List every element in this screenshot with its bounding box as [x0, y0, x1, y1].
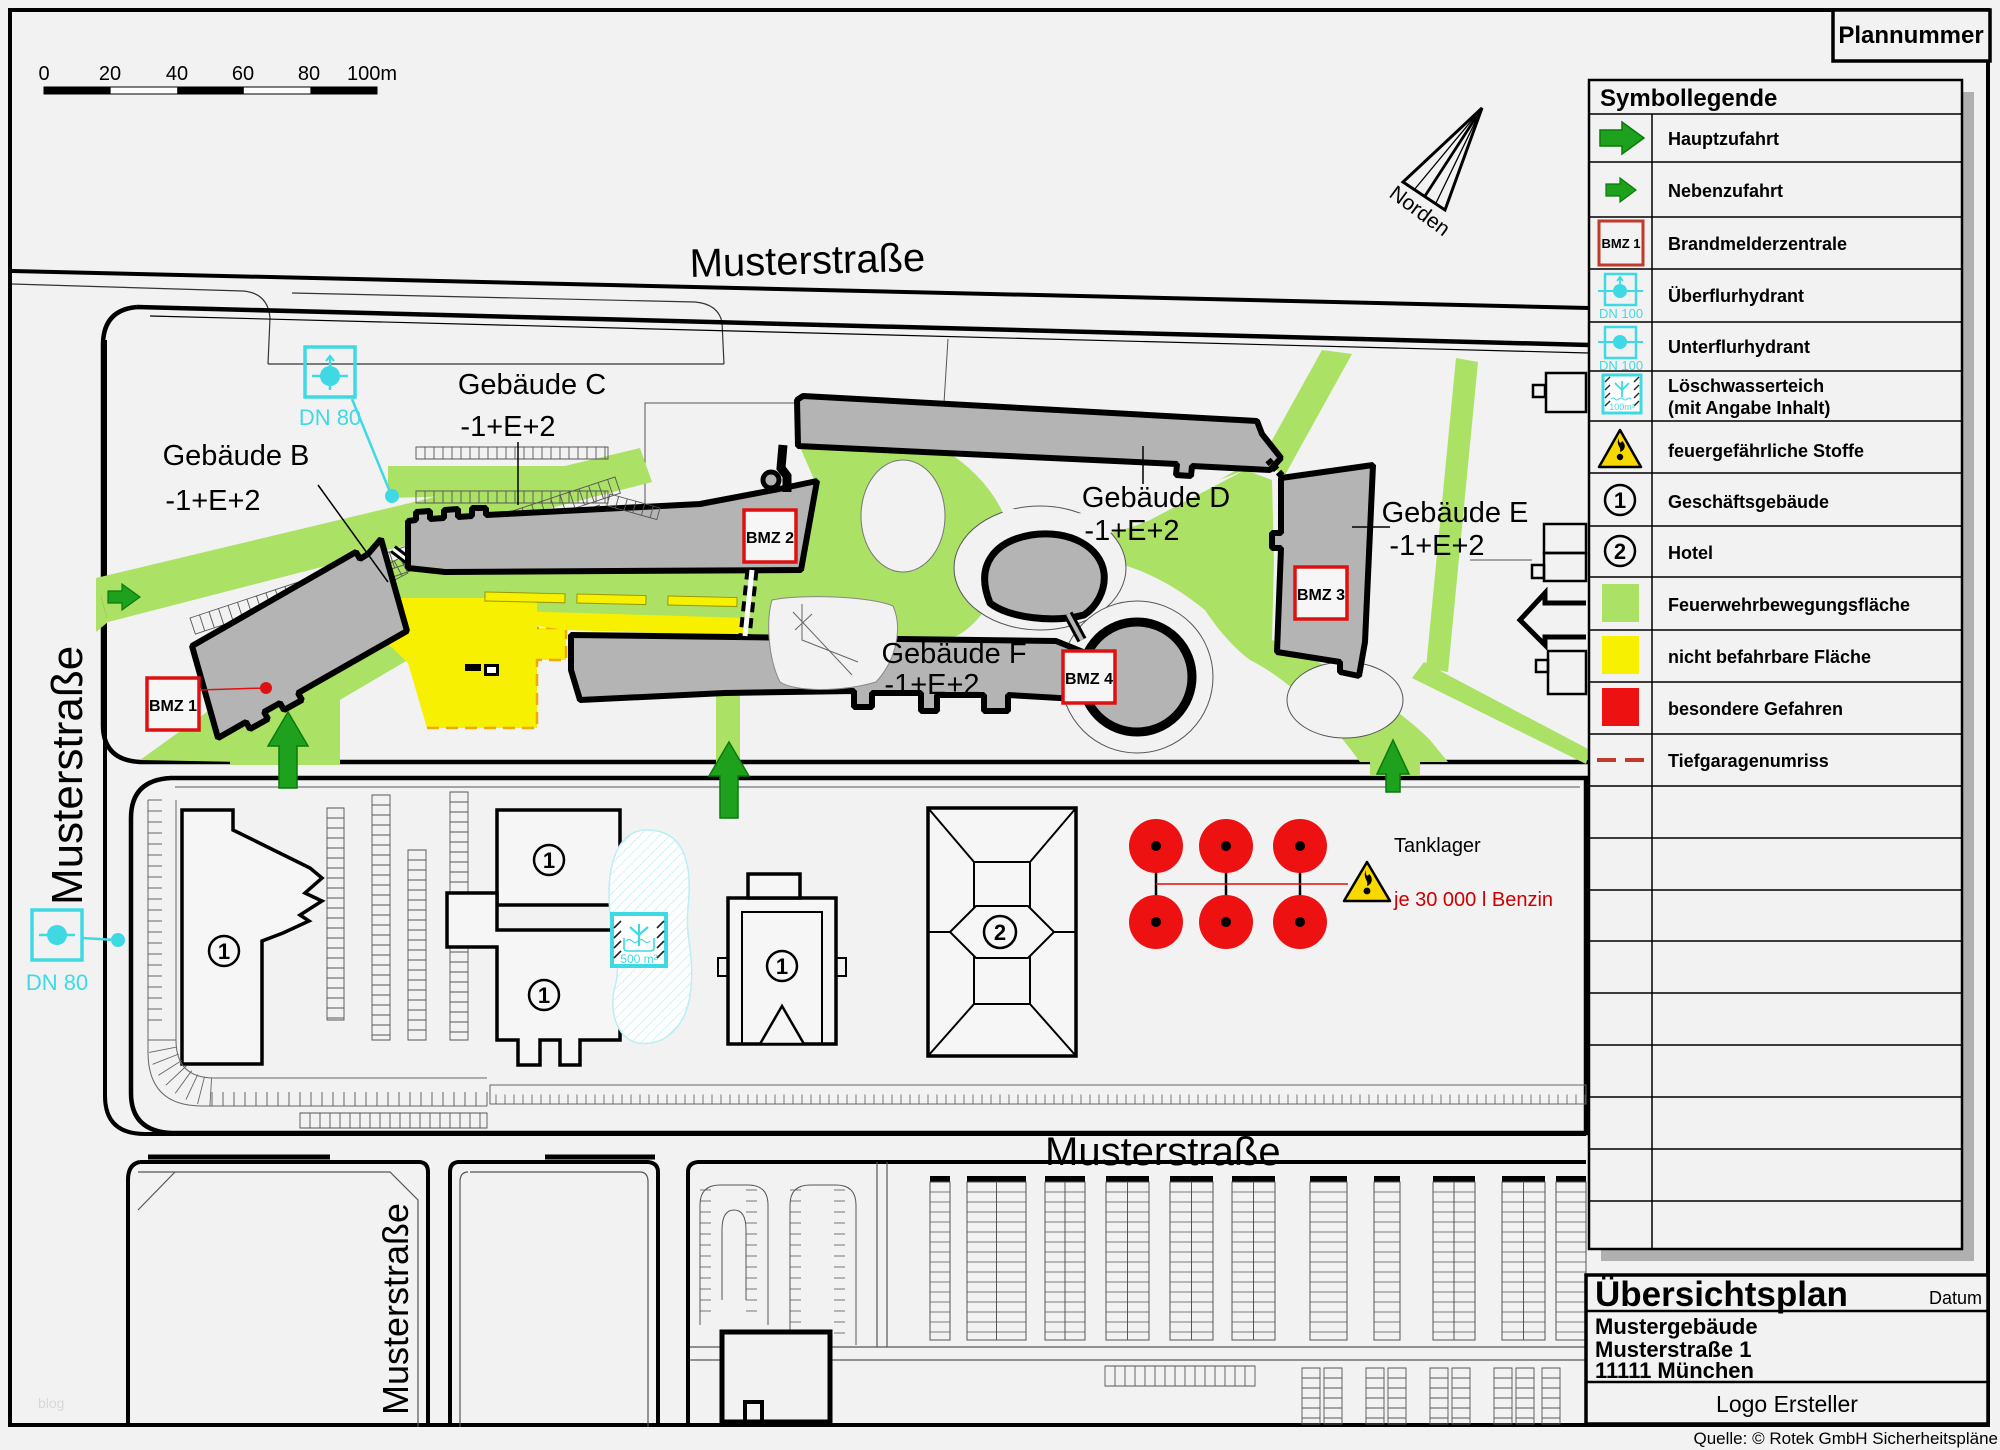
svg-text:Symbollegende: Symbollegende — [1600, 85, 1777, 112]
svg-text:je 30 000 l Benzin: je 30 000 l Benzin — [1393, 889, 1553, 911]
svg-text:-1+E+2: -1+E+2 — [1389, 530, 1484, 562]
svg-text:Tiefgaragenumriss: Tiefgaragenumriss — [1668, 751, 1829, 771]
svg-text:Gebäude C: Gebäude C — [458, 369, 606, 401]
svg-text:Nebenzufahrt: Nebenzufahrt — [1668, 181, 1783, 201]
svg-text:-1+E+2: -1+E+2 — [460, 411, 555, 443]
svg-text:80: 80 — [298, 63, 320, 85]
svg-text:besondere Gefahren: besondere Gefahren — [1668, 699, 1843, 719]
svg-text:-1+E+2: -1+E+2 — [1084, 515, 1179, 547]
svg-text:1: 1 — [543, 848, 555, 873]
svg-text:1: 1 — [218, 939, 230, 964]
svg-text:BMZ 3: BMZ 3 — [1297, 587, 1345, 604]
svg-text:DN 100: DN 100 — [1599, 358, 1643, 373]
svg-text:Hauptzufahrt: Hauptzufahrt — [1668, 129, 1779, 149]
svg-text:2: 2 — [994, 920, 1006, 945]
svg-text:feuergefährliche Stoffe: feuergefährliche Stoffe — [1668, 441, 1864, 461]
svg-text:Gebäude F: Gebäude F — [881, 638, 1026, 670]
svg-text:1: 1 — [538, 983, 550, 1008]
svg-text:Gebäude E: Gebäude E — [1382, 497, 1529, 529]
svg-text:100m: 100m — [347, 63, 397, 85]
svg-text:1: 1 — [776, 954, 788, 979]
svg-text:Mustergebäude: Mustergebäude — [1595, 1314, 1758, 1339]
svg-text:BMZ 1: BMZ 1 — [1602, 236, 1641, 251]
svg-text:Geschäftsgebäude: Geschäftsgebäude — [1668, 492, 1829, 512]
svg-text:BMZ 1: BMZ 1 — [149, 698, 197, 715]
svg-text:2: 2 — [1614, 539, 1626, 564]
svg-text:(mit Angabe Inhalt): (mit Angabe Inhalt) — [1668, 398, 1830, 418]
svg-text:Löschwasserteich: Löschwasserteich — [1668, 376, 1824, 396]
svg-text:11111 München: 11111 München — [1595, 1358, 1754, 1383]
svg-text:Gebäude B: Gebäude B — [163, 440, 310, 472]
svg-text:Tanklager: Tanklager — [1394, 835, 1481, 857]
svg-text:BMZ 2: BMZ 2 — [746, 530, 794, 547]
svg-text:BMZ 4: BMZ 4 — [1065, 671, 1113, 688]
svg-text:-1+E+2: -1+E+2 — [165, 485, 260, 517]
svg-text:DN 80: DN 80 — [299, 405, 361, 430]
svg-text:Plannummer: Plannummer — [1838, 22, 1983, 49]
svg-text:Übersichtsplan: Übersichtsplan — [1595, 1275, 1848, 1314]
svg-text:Musterstraße: Musterstraße — [43, 646, 92, 905]
svg-text:blog: blog — [38, 1395, 64, 1411]
svg-text:500 m²: 500 m² — [620, 952, 657, 966]
svg-text:Überflurhydrant: Überflurhydrant — [1668, 286, 1804, 306]
svg-text:Gebäude D: Gebäude D — [1082, 482, 1230, 514]
svg-text:Musterstraße: Musterstraße — [1045, 1130, 1281, 1174]
svg-text:100m²: 100m² — [1609, 402, 1635, 412]
svg-text:Quelle: © Rotek GmbH Sicherhei: Quelle: © Rotek GmbH Sicherheitspläne — [1694, 1429, 1999, 1448]
svg-text:20: 20 — [99, 63, 121, 85]
svg-text:1: 1 — [1614, 488, 1626, 513]
svg-text:-1+E+2: -1+E+2 — [884, 669, 979, 701]
svg-text:Logo Ersteller: Logo Ersteller — [1716, 1391, 1858, 1417]
svg-text:Musterstraße: Musterstraße — [375, 1203, 416, 1415]
svg-text:nicht befahrbare Fläche: nicht befahrbare Fläche — [1668, 647, 1871, 667]
svg-text:Musterstraße: Musterstraße — [689, 236, 926, 286]
svg-text:Unterflurhydrant: Unterflurhydrant — [1668, 337, 1810, 357]
svg-text:DN 100: DN 100 — [1599, 306, 1643, 321]
svg-text:Datum: Datum — [1929, 1288, 1982, 1308]
svg-text:DN 80: DN 80 — [26, 970, 88, 995]
svg-text:Feuerwehrbewegungsfläche: Feuerwehrbewegungsfläche — [1668, 595, 1910, 615]
svg-text:Brandmelderzentrale: Brandmelderzentrale — [1668, 234, 1847, 254]
svg-text:60: 60 — [232, 63, 254, 85]
svg-text:40: 40 — [166, 63, 188, 85]
svg-text:Hotel: Hotel — [1668, 543, 1713, 563]
svg-text:0: 0 — [38, 63, 49, 85]
